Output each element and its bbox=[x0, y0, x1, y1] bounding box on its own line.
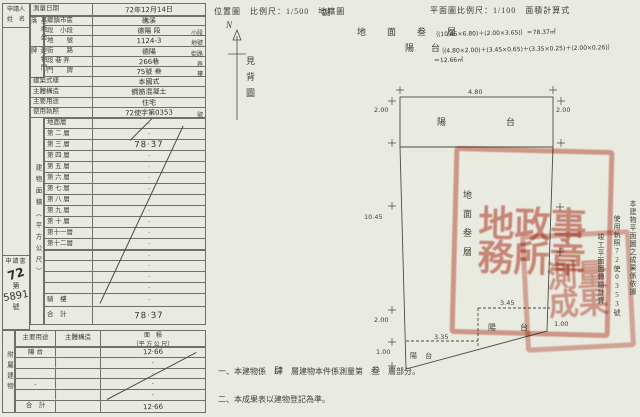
survey-result-sheet: 申請人 姓 名 申請書 72 第 5891 號 測量日期 72年12月14日 基… bbox=[0, 0, 640, 417]
applicant-name-label: 姓 名 bbox=[3, 16, 29, 26]
margin-note-1: 本建物平面圖之成果係依據 bbox=[628, 200, 638, 360]
floor-row-value: · bbox=[93, 162, 205, 172]
annex-row-use bbox=[16, 368, 56, 379]
annex-header-row: 主要用途 主體構造 面 積 （平 方 公 尺） bbox=[15, 330, 206, 347]
floor-row-value: · bbox=[93, 206, 205, 216]
form-row: 主要用途住宅 bbox=[30, 98, 206, 108]
applicant-label: 申請人 bbox=[3, 6, 29, 16]
floor-row: 第 三 層78·37 bbox=[44, 140, 206, 151]
note1-mid: 層建物本件係測量第 bbox=[291, 367, 363, 376]
floor-row: 第 七 層· bbox=[44, 184, 206, 195]
dim-left-balcony-height: 1.00 bbox=[376, 348, 390, 356]
blank-row: · bbox=[44, 250, 206, 261]
form-row-value: 住宅 bbox=[93, 96, 205, 108]
floor-total-row: 合 計 78·37 bbox=[44, 307, 206, 325]
form-row-label: 鄉鎮市區 bbox=[45, 17, 93, 25]
calc-balcony-result: ＝12.66㎡ bbox=[434, 55, 463, 65]
floor-row-label: 第 七 層 bbox=[45, 184, 93, 194]
annex-row-structure bbox=[56, 379, 101, 389]
floor-row-label: 第 十 層 bbox=[45, 217, 93, 227]
floor-row-value: · bbox=[93, 129, 205, 139]
floor-row-value: · bbox=[93, 239, 205, 249]
note1-pre: 一、本建物係 bbox=[218, 367, 266, 376]
calc-balcony-formula: ｛(4.80×2.00)＋(3.45×0.65)＋(3.35×0.25)＋(2.… bbox=[438, 42, 614, 55]
floor-total-label: 合 計 bbox=[45, 307, 93, 324]
qilou-value: · bbox=[93, 294, 205, 306]
see-back-label: 見背圖 bbox=[244, 56, 257, 104]
note-line-2: 二、本成果表以建物登記為準。 bbox=[218, 394, 330, 405]
floor-row-label: 第十一層 bbox=[45, 228, 93, 238]
annex-row-structure bbox=[56, 390, 101, 400]
form-row-value: 72使字第0353 bbox=[93, 107, 205, 119]
floor-row-value: · bbox=[93, 151, 205, 161]
form-row: 街 路德陽街路 bbox=[44, 47, 206, 57]
annex-header-area: 面 積 （平 方 公 尺） bbox=[101, 331, 205, 346]
annex-header-area-line1: 面 積 bbox=[144, 330, 162, 339]
floor-row-value: · bbox=[93, 173, 205, 183]
form-row: 使用執照72使字第0353號 bbox=[30, 108, 206, 118]
annex-row-use bbox=[16, 390, 56, 401]
floor-row-value: · bbox=[93, 184, 205, 194]
annex-row: · bbox=[15, 358, 206, 369]
floor-row-value: · bbox=[93, 217, 205, 227]
dim-top: 4.80 bbox=[468, 88, 482, 96]
qilou-row: 騎 樓 · bbox=[44, 294, 206, 307]
floor-row-label: 第 六 層 bbox=[45, 173, 93, 183]
survey-date-label: 測量日期 bbox=[31, 4, 93, 15]
blank-row-label bbox=[45, 261, 93, 271]
blank-row-value: · bbox=[93, 251, 205, 260]
floor-row-label: 第 二 層 bbox=[45, 129, 93, 139]
application-number-box: 申請書 72 第 5891 號 bbox=[2, 256, 30, 330]
blank-row-label bbox=[45, 251, 93, 260]
floor-row-label: 第 八 層 bbox=[45, 195, 93, 205]
note-char: 說 bbox=[322, 7, 330, 18]
form-row-label: 地 號 bbox=[45, 36, 93, 45]
form-row-label: 段 小段 bbox=[45, 26, 93, 35]
floor-row-label: 第 九 層 bbox=[45, 206, 93, 216]
blank-row: · bbox=[44, 283, 206, 294]
dim-left-balcony-width: 3.35 bbox=[434, 333, 448, 341]
annex-total-label: 合 計 bbox=[16, 401, 56, 412]
annex-row-use: 陽 台 bbox=[16, 348, 56, 358]
annex-header-structure: 主體構造 bbox=[56, 331, 101, 346]
floor-row: 第 十 層· bbox=[44, 217, 206, 228]
floor-row: 第 六 層· bbox=[44, 173, 206, 184]
annex-row-structure bbox=[56, 348, 101, 357]
annex-rows: 陽 台12·66··-·· bbox=[15, 347, 206, 401]
annex-row-structure bbox=[56, 358, 101, 368]
dim-left-upper: 2.00 bbox=[374, 106, 388, 114]
floor-row: 第 五 層· bbox=[44, 162, 206, 173]
blank-row-value: · bbox=[93, 261, 205, 271]
form-row-value: 1124-3 bbox=[93, 35, 205, 47]
floor-extra-rows: ···· bbox=[44, 250, 206, 294]
floor-row-value: 78·37 bbox=[93, 139, 205, 151]
floor-row: 第十一層· bbox=[44, 228, 206, 239]
plan-scale-caption: 平面圖比例尺：1/100 面積計算式 bbox=[430, 5, 570, 16]
annex-row-structure bbox=[56, 369, 101, 379]
form-row-label: 建築式樣 bbox=[31, 77, 93, 86]
floor-row-label: 第十二層 bbox=[45, 239, 93, 249]
plan-balcony-left-label: 陽 台 bbox=[410, 351, 435, 360]
form-row-label: 使用執照 bbox=[31, 108, 93, 117]
dim-left-total: 10.45 bbox=[364, 213, 383, 221]
blank-row-value: · bbox=[93, 283, 205, 293]
calc-floor-formula: ｛(10.45×6.80)＋(2.00×3.65)｝＝78.37㎡ bbox=[432, 27, 556, 39]
floor-row-label: 第 五 層 bbox=[45, 162, 93, 172]
survey-date-value: 72年12月14日 bbox=[93, 3, 205, 16]
blank-row-label bbox=[45, 283, 93, 293]
floor-row-label: 地面層 bbox=[45, 119, 93, 128]
group-label-address: 建物門牌 bbox=[30, 47, 44, 78]
applicant-box: 申請人 姓 名 bbox=[2, 3, 30, 28]
annex-row-use bbox=[16, 357, 56, 368]
blank-row: · bbox=[44, 272, 206, 283]
floor-row-label: 第 四 層 bbox=[45, 151, 93, 161]
annex-side-label: 附屬建物 bbox=[2, 330, 15, 413]
site-address-rows: 鄉鎮市區礁溪段 小段德陽 段小段地 號1124-3地號街 路德陽街路段 巷 弄2… bbox=[44, 16, 206, 118]
annex-row-area: · bbox=[101, 357, 205, 369]
form-row-label: 主要用途 bbox=[31, 98, 93, 107]
floor-row-value: · bbox=[93, 228, 205, 238]
form-row-value: 鋼筋混凝土 bbox=[93, 86, 205, 98]
annex-row: 陽 台12·66 bbox=[15, 347, 206, 358]
note1-handwritten-level: 叁 bbox=[365, 367, 386, 377]
dim-left-balcony-left: 2.00 bbox=[374, 316, 388, 324]
floor-area-rows: 地面層·第 二 層·第 三 層78·37第 四 層·第 五 層·第 六 層·第 … bbox=[44, 118, 206, 250]
group-label-area: 建物面積（平方公尺） bbox=[30, 118, 44, 325]
form-row: 主體構造鋼筋混凝土 bbox=[30, 87, 206, 97]
floor-row: 第 八 層· bbox=[44, 195, 206, 206]
annex-header-use: 主要用途 bbox=[16, 331, 56, 346]
form-row-label: 街 路 bbox=[45, 47, 93, 56]
plan-balcony-top-label: 陽 台 bbox=[437, 116, 529, 128]
form-row-label: 門 牌 bbox=[45, 67, 93, 76]
qilou-label: 騎 樓 bbox=[45, 294, 93, 306]
floor-row-label: 第 三 層 bbox=[45, 140, 93, 150]
floor-total-value: 78·37 bbox=[93, 306, 205, 325]
note1-handwritten-floors: 肆 bbox=[268, 367, 289, 377]
blank-row-label bbox=[45, 272, 93, 282]
applicant-empty-box bbox=[2, 28, 30, 256]
annex-total-row: 合 計 12·66 bbox=[15, 401, 206, 413]
annex-total-value: 12·66 bbox=[101, 400, 205, 413]
form-row: 地 號1124-3地號 bbox=[44, 36, 206, 46]
blank-row: · bbox=[44, 261, 206, 272]
margin-note-3: 竣工平面圖轉繪計算 bbox=[596, 233, 606, 383]
floor-row: 第 九 層· bbox=[44, 206, 206, 217]
form-row-label: 主體構造 bbox=[31, 87, 93, 96]
note-line-1: 一、本建物係 肆 層建物本件係測量第 叁 層部分。 bbox=[218, 364, 420, 377]
group-label-site: 基地坐落 bbox=[30, 16, 44, 47]
floor-row: 第 四 層· bbox=[44, 151, 206, 162]
form-row-label: 段 巷 弄 bbox=[45, 57, 93, 66]
annex-row-use: - bbox=[16, 379, 56, 390]
dim-right-upper: 2.00 bbox=[556, 106, 570, 114]
margin-note-2: 使用執照72使0353號 bbox=[612, 215, 622, 365]
note1-post: 層部分。 bbox=[388, 367, 420, 376]
survey-date-row: 測量日期 72年12月14日 bbox=[30, 3, 206, 16]
